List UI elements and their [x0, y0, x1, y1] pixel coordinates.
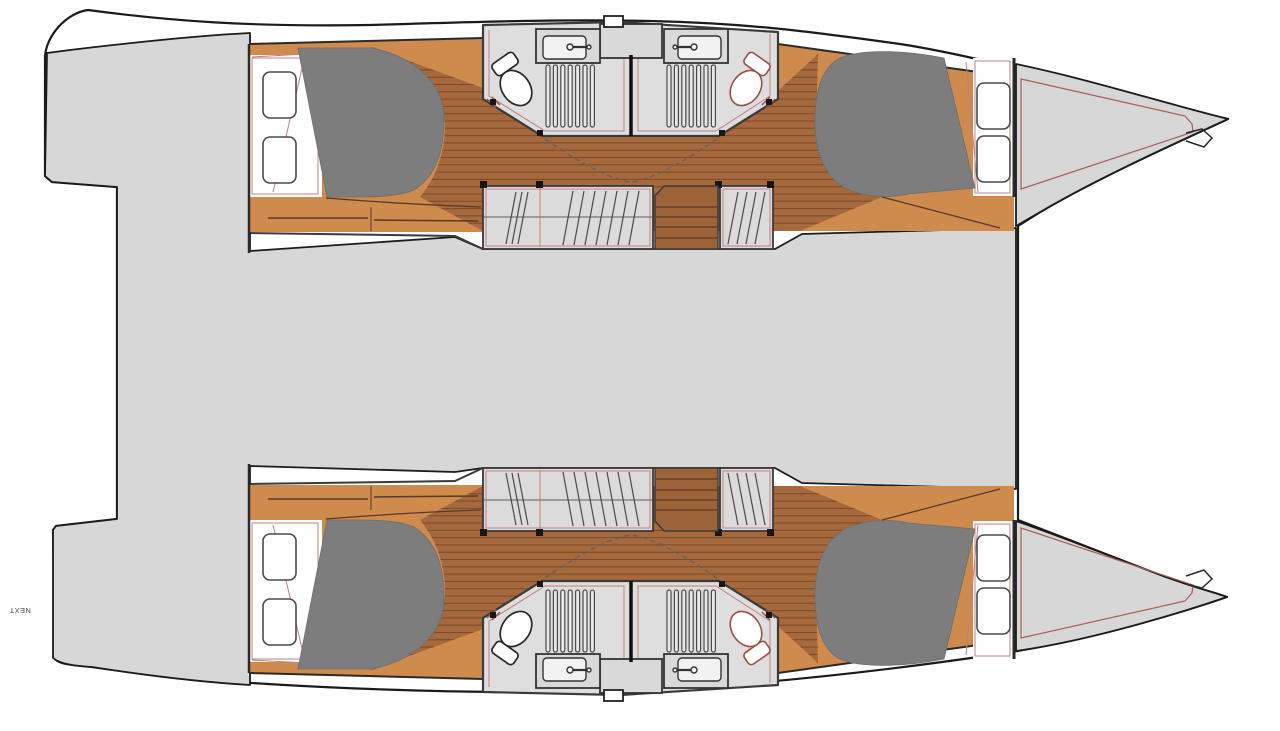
- fwd-hatch-2: [977, 136, 1010, 182]
- shower-grate-left: [546, 65, 594, 127]
- sink-right: [664, 29, 728, 63]
- fwd-hatch-1: [977, 83, 1010, 129]
- next-watermark: NEXT: [4, 606, 36, 615]
- center-console: [600, 24, 662, 58]
- sink-left: [536, 29, 600, 63]
- aft-hatch-1: [263, 72, 296, 118]
- floor-plan-stage: NEXT: [0, 0, 1280, 731]
- deck-tab: [604, 16, 623, 27]
- shower-grate-right: [667, 65, 715, 127]
- companionway-stairs: [655, 186, 718, 249]
- aft-hatch-2: [263, 137, 296, 183]
- catamaran-floorplan-canvas: [0, 0, 1280, 731]
- hanging-lockers: [480, 181, 774, 249]
